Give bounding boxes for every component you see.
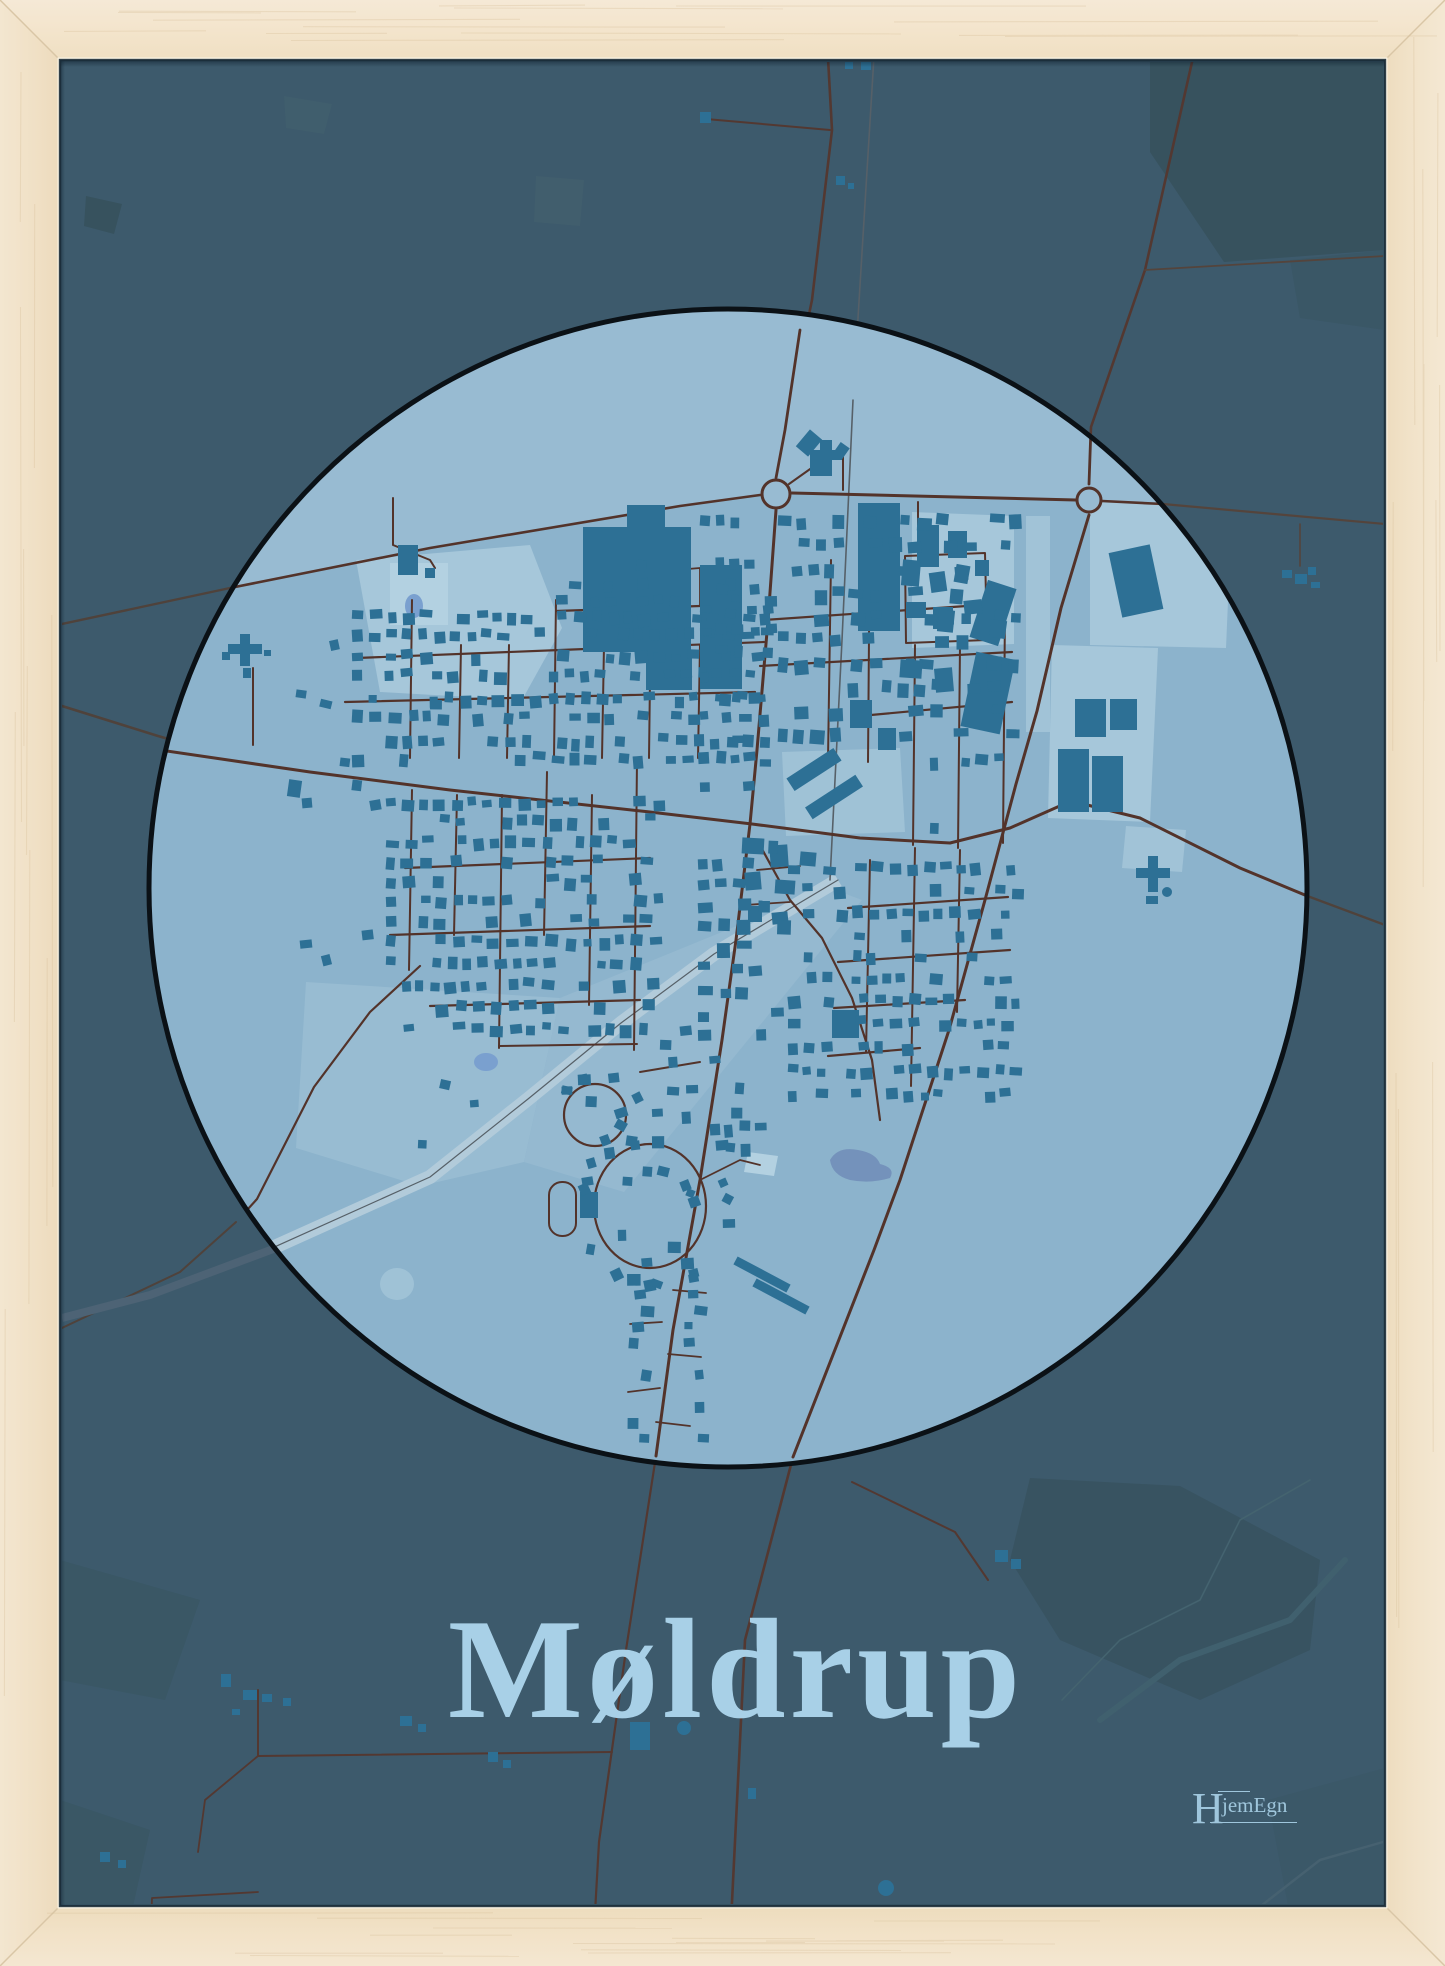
svg-text:jemEgn: jemEgn bbox=[1221, 1793, 1288, 1817]
svg-text:Møldrup: Møldrup bbox=[448, 1590, 1024, 1748]
